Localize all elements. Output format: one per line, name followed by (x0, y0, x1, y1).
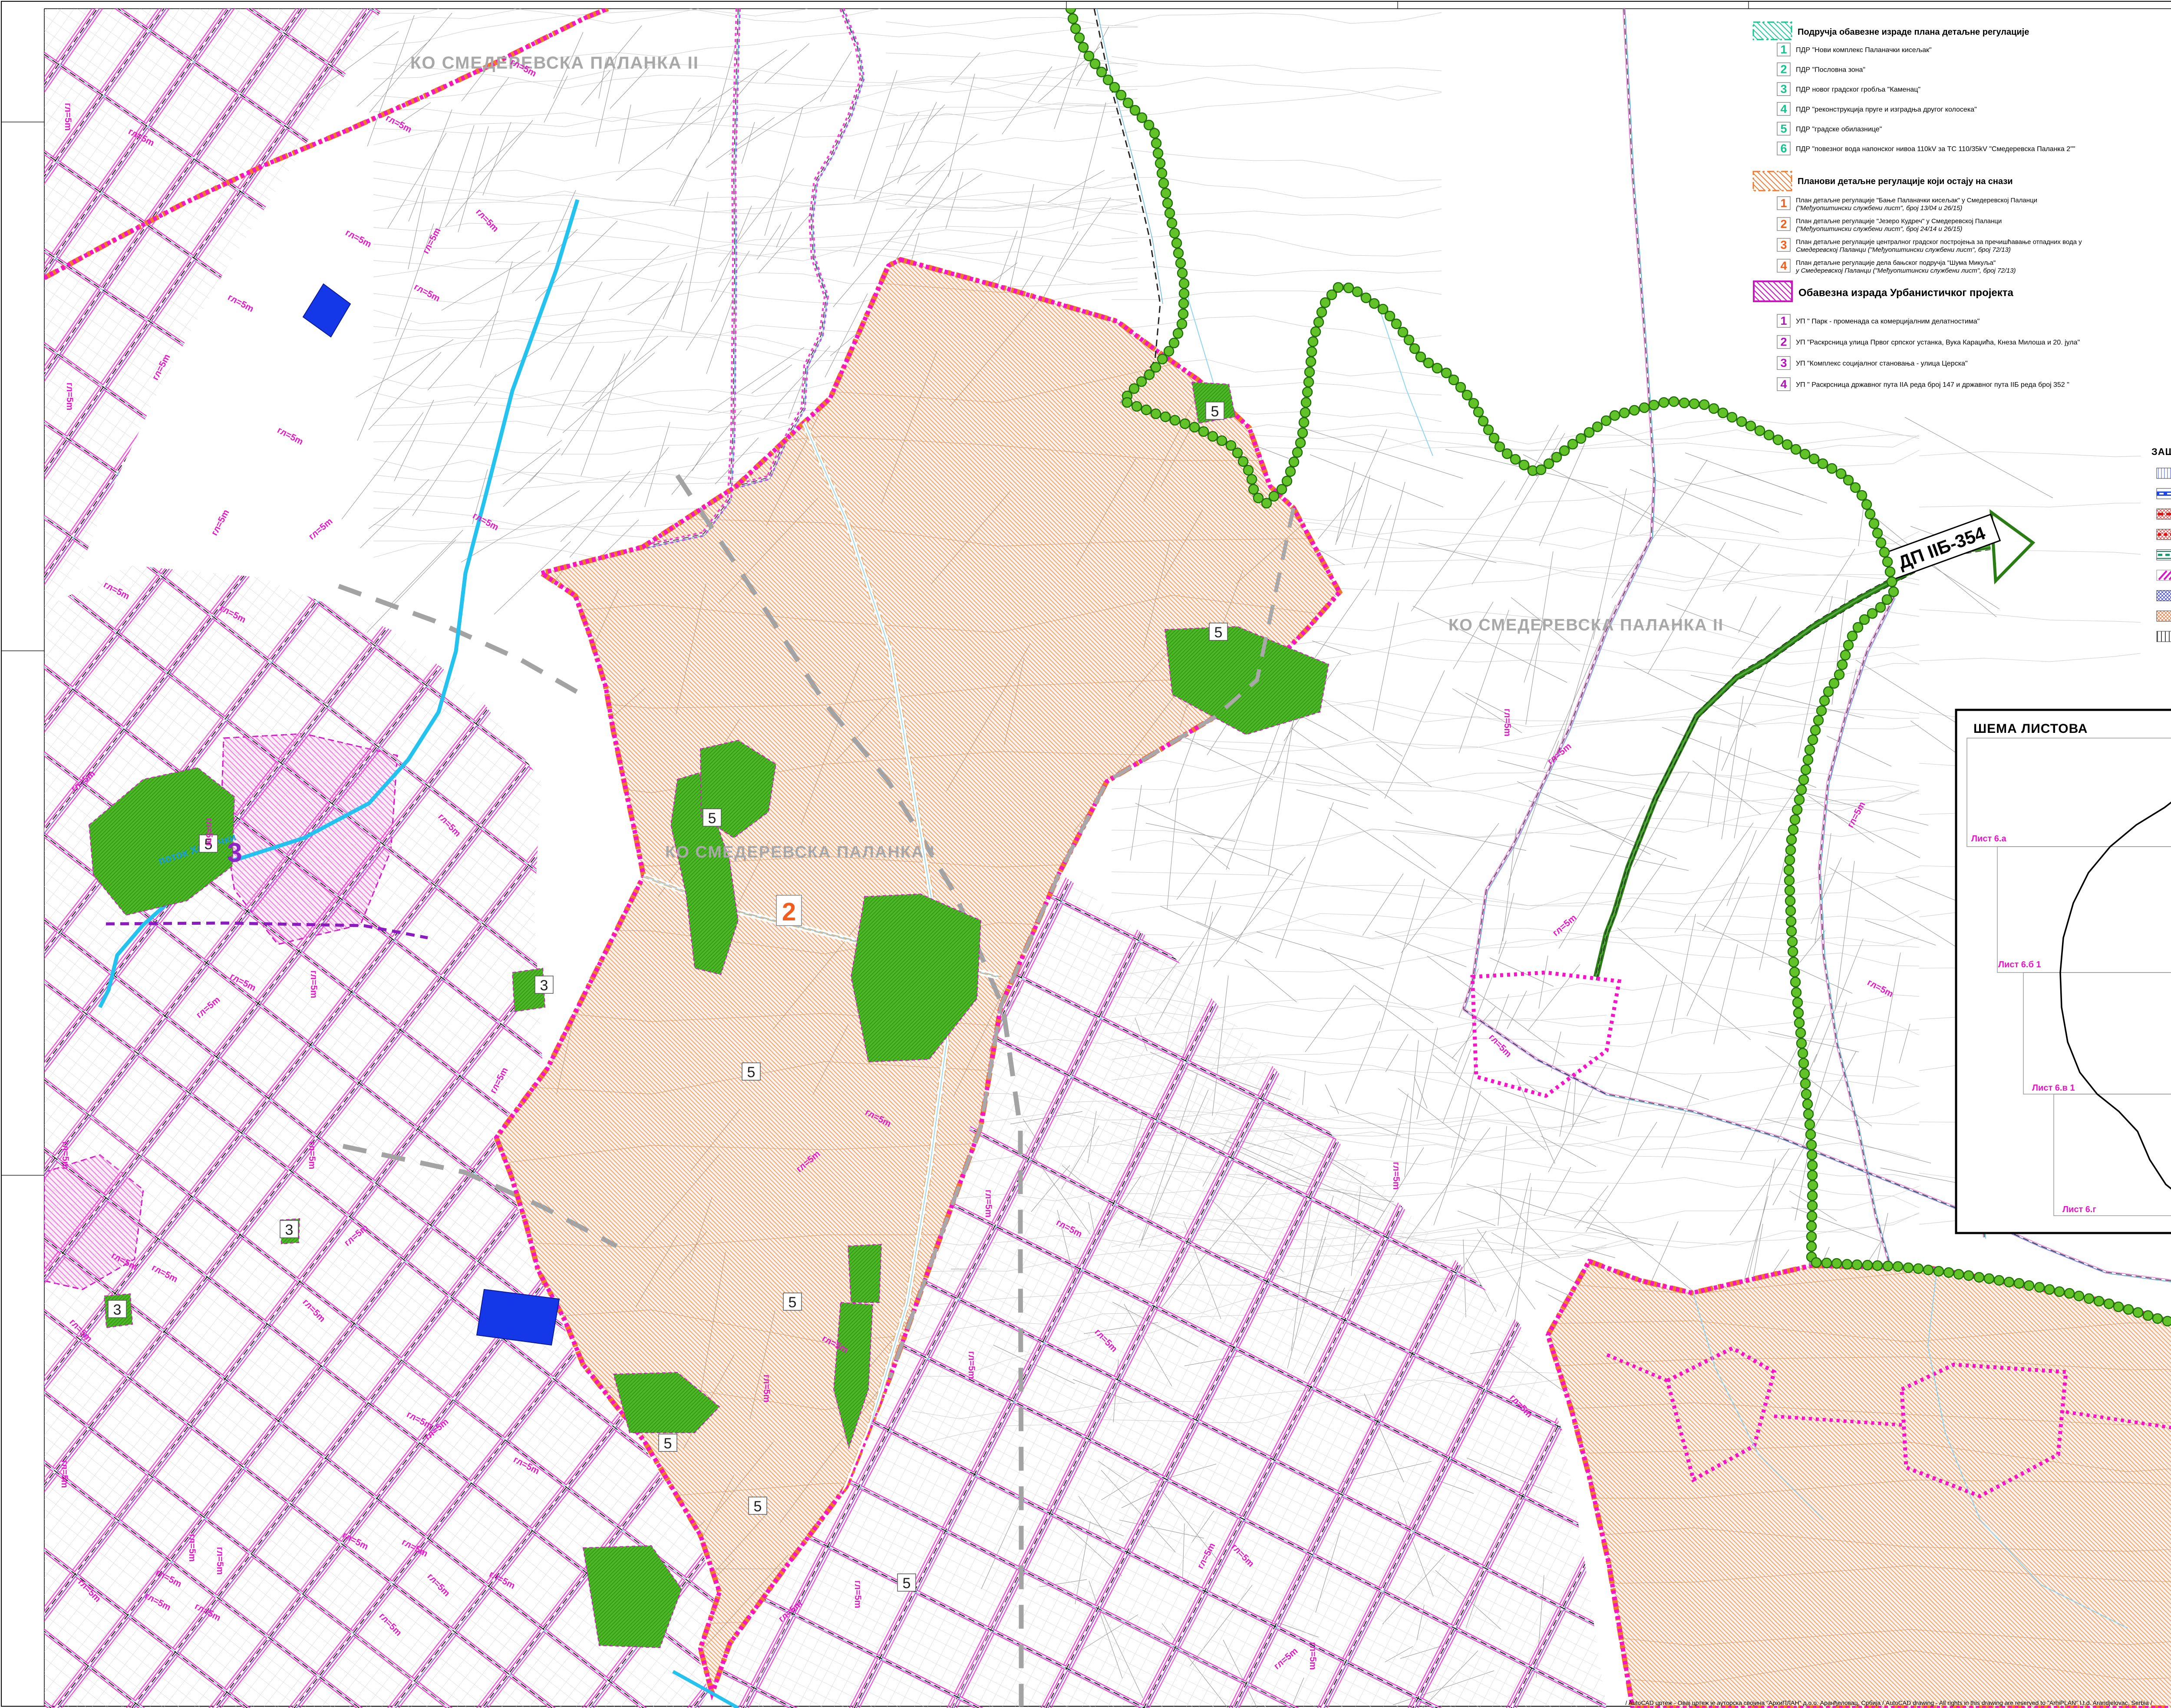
svg-text:5: 5 (747, 1064, 756, 1081)
svg-text:УП " Парк - променада са комер: УП " Парк - променада са комерцијалним д… (1796, 318, 1980, 325)
svg-text:1: 1 (1780, 43, 1787, 56)
svg-text:5: 5 (708, 810, 716, 827)
svg-text:План детаљне регулације центра: План детаљне регулације централног градс… (1796, 238, 2082, 246)
svg-text:гл=5m: гл=5m (983, 1190, 993, 1217)
svg-text:4: 4 (1780, 102, 1787, 115)
svg-text:ШЕМА ЛИСТОВА: ШЕМА ЛИСТОВА (1973, 722, 2088, 736)
svg-text:Лист 6.а: Лист 6.а (1971, 834, 2006, 844)
svg-text:План детаљне регулације дела б: План детаљне регулације дела бањског под… (1796, 259, 1996, 267)
svg-text:/ AutoCAD цртеж - Овај цртеж ј: / AutoCAD цртеж - Овај цртеж је ауторска… (1625, 1699, 2152, 1706)
svg-text:5: 5 (903, 1575, 911, 1592)
svg-text:5: 5 (754, 1498, 762, 1515)
svg-text:("Међуопштински службени лист": ("Међуопштински службени лист", број 13/… (1796, 204, 1962, 212)
svg-text:5: 5 (1780, 122, 1787, 135)
svg-text:гл=5m: гл=5m (762, 1375, 772, 1402)
svg-text:Подручја обавезне израде плана: Подручја обавезне израде плана детаљне р… (1798, 27, 2029, 37)
svg-text:5: 5 (1214, 624, 1223, 641)
svg-text:гл=5m: гл=5m (967, 1351, 977, 1379)
svg-text:1: 1 (1780, 314, 1787, 327)
svg-text:1: 1 (1780, 197, 1787, 210)
svg-text:3: 3 (1780, 82, 1787, 96)
svg-text:3: 3 (113, 1302, 122, 1318)
svg-text:гл=5m: гл=5m (60, 1141, 70, 1169)
svg-text:УП "Комплекс социјалног станов: УП "Комплекс социјалног становања - улиц… (1796, 360, 1968, 367)
svg-text:гл=5m: гл=5m (187, 1534, 197, 1562)
svg-text:Лист 6.б 1: Лист 6.б 1 (1998, 960, 2041, 969)
svg-text:гл=5m: гл=5m (204, 818, 214, 846)
svg-text:2: 2 (1780, 336, 1787, 349)
svg-text:Лист 6.в 1: Лист 6.в 1 (2032, 1083, 2075, 1093)
svg-text:3: 3 (540, 977, 548, 994)
svg-text:Лист 6.г: Лист 6.г (2062, 1205, 2096, 1214)
svg-text:гл=5m: гл=5m (65, 382, 75, 410)
svg-text:5: 5 (1211, 403, 1219, 420)
svg-text:ПДР новог градског гробља "Кам: ПДР новог градског гробља "Каменац" (1796, 86, 1920, 93)
svg-text:гл=5m: гл=5m (1502, 709, 1512, 736)
svg-text:2: 2 (1780, 63, 1787, 76)
svg-text:3: 3 (285, 1222, 294, 1238)
svg-text:у Смедеревској Паланци ("Међуо: у Смедеревској Паланци ("Међуопштински с… (1795, 267, 2016, 274)
svg-text:гл=5m: гл=5m (853, 1580, 863, 1608)
svg-text:ЗАШТИТНЕ ЗОНЕ И ПОЈАСЕВИ: ЗАШТИТНЕ ЗОНЕ И ПОЈАСЕВИ (2151, 446, 2171, 457)
svg-text:ПДР "повезног вода напонског н: ПДР "повезног вода напонског нивоа 110kV… (1796, 145, 2075, 153)
svg-text:2: 2 (782, 898, 796, 926)
svg-text:Планови детаљне регулације кој: Планови детаљне регулације који остају н… (1798, 177, 2013, 186)
svg-text:гл=5m: гл=5m (1308, 1642, 1318, 1670)
svg-text:("Међуопштински службени лист": ("Међуопштински службени лист", број 24/… (1796, 225, 1962, 233)
svg-text:6: 6 (1780, 142, 1787, 155)
svg-text:УП " Раскрсница државног пута: УП " Раскрсница државног пута IIА реда б… (1796, 381, 2069, 389)
svg-text:Обавезна израда Урбанистичког: Обавезна израда Урбанистичког пројекта (1798, 287, 2014, 299)
svg-text:План детаљне регулације "Бање: План детаљне регулације "Бање Паланачки … (1796, 197, 2037, 204)
svg-text:5: 5 (664, 1435, 672, 1452)
svg-text:УП "Раскрсница улица Првог срп: УП "Раскрсница улица Првог српског устан… (1796, 339, 2080, 346)
svg-text:ПДР "градске обилазнице": ПДР "градске обилазнице" (1796, 125, 1882, 133)
svg-text:3: 3 (1780, 238, 1787, 251)
svg-text:План детаљне регулације "Језер: План детаљне регулације "Језеро Кудреч" … (1796, 218, 2002, 225)
svg-text:гл=5m: гл=5m (309, 970, 319, 998)
svg-text:5: 5 (789, 1294, 797, 1311)
svg-text:КО СМЕДЕРЕВСКА ПАЛАНКА II: КО СМЕДЕРЕВСКА ПАЛАНКА II (1448, 616, 1724, 634)
svg-text:гл=5m: гл=5m (215, 1547, 225, 1575)
svg-text:гл=5m: гл=5m (63, 103, 73, 131)
svg-text:2: 2 (1780, 218, 1787, 231)
svg-text:КО СМЕДЕРЕВСКА ПАЛАНКА II: КО СМЕДЕРЕВСКА ПАЛАНКА II (410, 53, 699, 73)
svg-text:гл=5m: гл=5m (1391, 1162, 1401, 1190)
svg-text:Смедеревској Паланци ("Међуопш: Смедеревској Паланци ("Међуопштински слу… (1796, 246, 2011, 254)
svg-text:ПДР "Нови комплекс Паланачки к: ПДР "Нови комплекс Паланачки кисељак" (1796, 46, 1932, 54)
svg-text:ПДР "реконструкција пруге и из: ПДР "реконструкција пруге и изградња дру… (1796, 106, 1977, 113)
svg-text:ПДР "Пословна зона": ПДР "Пословна зона" (1796, 66, 1865, 74)
svg-text:КО СМЕДЕРЕВСКА ПАЛАНКА I: КО СМЕДЕРЕВСКА ПАЛАНКА I (665, 843, 935, 861)
svg-text:гл=5m: гл=5m (59, 1460, 69, 1488)
svg-text:3: 3 (227, 838, 242, 868)
svg-text:3: 3 (1780, 356, 1787, 369)
svg-text:гл=5m: гл=5m (307, 1141, 317, 1169)
svg-text:4: 4 (1780, 259, 1787, 272)
svg-text:4: 4 (1780, 378, 1787, 391)
